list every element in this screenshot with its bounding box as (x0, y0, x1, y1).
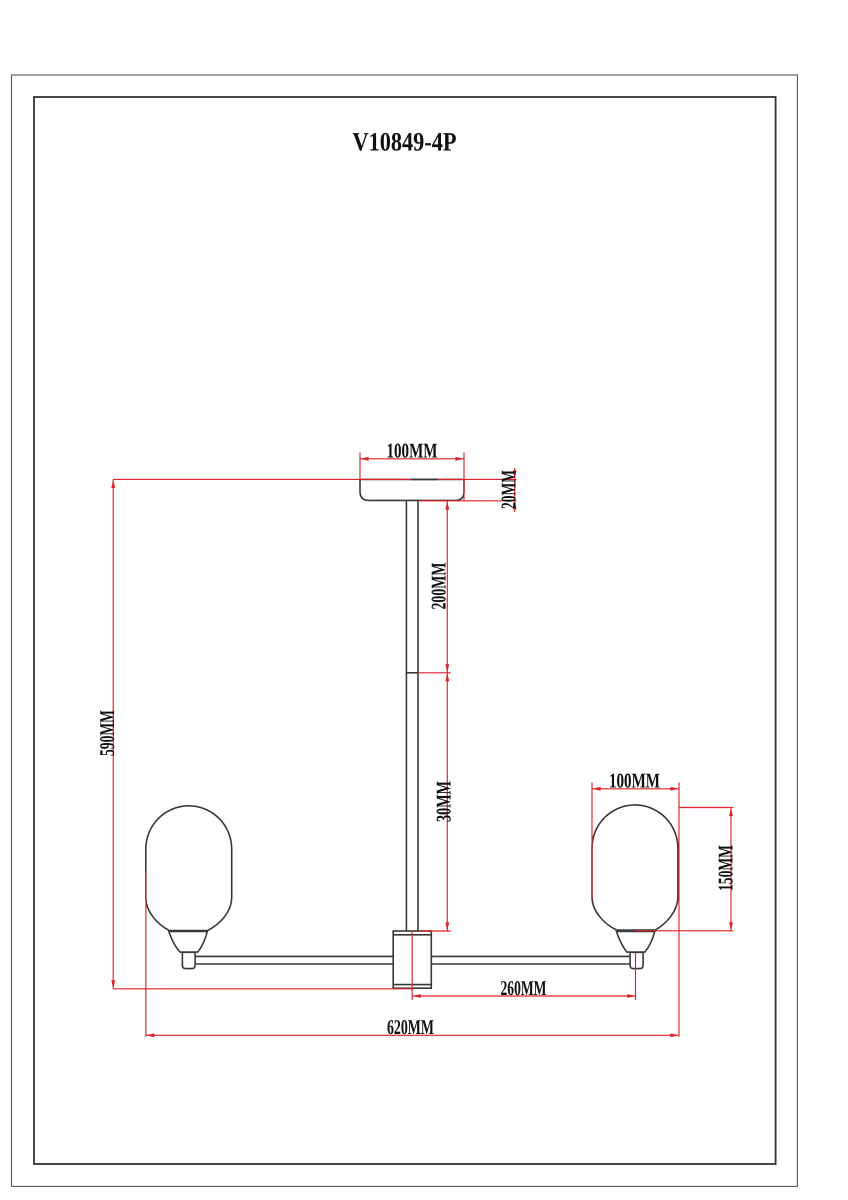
svg-text:260MM: 260MM (501, 976, 547, 1000)
svg-text:100MM: 100MM (387, 439, 438, 463)
svg-text:20MM: 20MM (496, 470, 520, 509)
svg-text:150MM: 150MM (714, 845, 738, 891)
svg-text:200MM: 200MM (427, 562, 451, 609)
svg-text:V10849-4P: V10849-4P (353, 127, 457, 157)
svg-text:620MM: 620MM (387, 1015, 434, 1039)
svg-text:100MM: 100MM (609, 769, 660, 793)
svg-text:590MM: 590MM (95, 710, 119, 756)
svg-text:30MM: 30MM (432, 781, 456, 822)
